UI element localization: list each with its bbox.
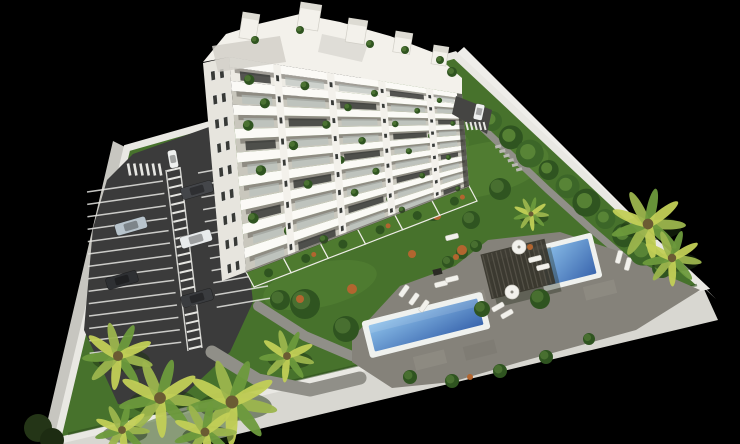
terrace-hedge xyxy=(450,197,459,206)
terrace-hedge xyxy=(413,211,422,220)
pier-window xyxy=(276,75,280,82)
pier-window xyxy=(390,208,394,214)
pier-window xyxy=(339,207,343,213)
bush-highlight xyxy=(272,292,284,304)
balcony-plant xyxy=(446,155,449,158)
side-window xyxy=(231,212,236,223)
pier-window xyxy=(281,138,285,145)
pier-window xyxy=(431,131,435,135)
pier-window xyxy=(384,134,388,139)
pier-window xyxy=(331,100,335,106)
rooftop-plant xyxy=(448,68,454,74)
pier-window xyxy=(287,222,291,229)
boundary-tree-highlight xyxy=(502,129,515,142)
bush-highlight xyxy=(491,180,504,193)
bush-highlight xyxy=(463,212,474,223)
pier-window xyxy=(433,155,437,159)
balcony-plant xyxy=(420,173,424,177)
balcony-plant xyxy=(437,98,440,101)
rooftop-plant xyxy=(402,47,407,52)
balcony-plant xyxy=(373,168,377,172)
palm-trunk xyxy=(283,352,291,360)
side-window xyxy=(213,95,218,105)
balcony-plant xyxy=(320,235,325,240)
pier-window xyxy=(335,154,339,160)
palm-trunk xyxy=(118,426,126,434)
rooftop-box xyxy=(239,12,260,40)
side-window xyxy=(227,263,232,274)
pier-window xyxy=(329,82,333,88)
balcony-plant xyxy=(371,90,375,94)
boundary-tree-highlight xyxy=(598,212,609,223)
terrace-shrub xyxy=(460,195,465,200)
side-window xyxy=(219,167,224,177)
pier-window xyxy=(289,243,293,250)
balcony-glass xyxy=(288,118,327,126)
pier-window xyxy=(282,159,286,166)
side-window xyxy=(227,164,232,174)
pier-window xyxy=(333,136,337,142)
balcony-plant xyxy=(304,180,309,185)
pier-window xyxy=(383,119,387,124)
pier-window xyxy=(430,119,434,123)
bush-highlight xyxy=(471,241,478,248)
side-window xyxy=(223,215,228,226)
pier-window xyxy=(432,143,435,147)
pier-window xyxy=(387,178,391,183)
pier-window xyxy=(380,89,384,94)
pier-window xyxy=(382,104,386,109)
side-window xyxy=(229,188,234,198)
balcony-plant xyxy=(256,166,262,172)
rooftop-plant xyxy=(297,27,302,32)
boundary-tree-highlight xyxy=(577,193,592,208)
pier-window xyxy=(435,179,438,184)
bush-highlight xyxy=(532,291,544,303)
bush-highlight xyxy=(404,371,412,379)
bush-highlight xyxy=(443,257,450,264)
bush-highlight xyxy=(335,318,351,334)
balcony-plant xyxy=(392,121,396,125)
balcony-plant xyxy=(415,108,419,112)
rooftop-box xyxy=(345,18,368,45)
balcony-plant xyxy=(301,82,306,87)
palm-trunk xyxy=(668,254,676,262)
balcony-plant xyxy=(243,121,249,127)
pier-window xyxy=(336,172,340,178)
side-window xyxy=(221,191,226,201)
bush-highlight xyxy=(584,334,591,341)
pier-window xyxy=(428,95,432,99)
side-window xyxy=(211,71,216,81)
flowering-shrub xyxy=(453,254,459,260)
pier-window xyxy=(386,163,390,168)
terrace-shrub xyxy=(386,223,391,228)
side-window xyxy=(225,140,230,150)
pier-window xyxy=(429,107,433,111)
balcony-plant xyxy=(248,213,254,219)
balcony-plant xyxy=(323,121,328,126)
terrace-hedge xyxy=(301,254,310,263)
terrace-hedge xyxy=(338,240,347,249)
balcony-plant xyxy=(351,189,356,194)
balcony-plant xyxy=(244,75,250,81)
pier-window xyxy=(286,201,290,208)
bush-highlight xyxy=(475,302,485,312)
pier-window xyxy=(277,96,281,103)
pier-window xyxy=(385,148,389,153)
terrace-hedge xyxy=(376,225,385,234)
palm-trunk xyxy=(201,428,210,437)
balcony-plant xyxy=(451,121,454,124)
flowering-shrub xyxy=(457,245,467,255)
flowering-shrub xyxy=(467,374,473,380)
side-window xyxy=(233,236,238,247)
bush-highlight xyxy=(446,375,454,383)
bush-highlight xyxy=(494,365,502,373)
balcony-glass xyxy=(341,119,377,126)
side-window xyxy=(235,260,240,271)
palm-trunk xyxy=(113,351,123,361)
boundary-tree-highlight xyxy=(559,178,572,191)
palm-trunk xyxy=(643,219,654,230)
boundary-tree-highlight xyxy=(541,163,552,174)
palm-trunk xyxy=(154,392,166,404)
side-window xyxy=(217,143,222,153)
pier-window xyxy=(389,193,393,198)
flowering-shrub xyxy=(527,244,533,250)
balcony-plant xyxy=(289,141,295,147)
balcony-plant xyxy=(399,207,403,211)
palm-trunk xyxy=(528,211,533,216)
pier-window xyxy=(332,118,336,123)
flowering-shrub xyxy=(296,295,304,303)
balcony-plant xyxy=(359,137,363,141)
side-window xyxy=(225,239,230,250)
side-window xyxy=(223,116,228,126)
pier-window xyxy=(434,167,438,171)
terrace-hedge xyxy=(264,268,273,277)
flowering-shrub xyxy=(408,250,416,258)
pier-window xyxy=(279,117,283,123)
balcony-plant xyxy=(260,99,266,105)
balcony-plant xyxy=(344,104,349,109)
rooftop-plant xyxy=(252,37,257,42)
bush-highlight xyxy=(540,351,548,359)
terrace-shrub xyxy=(311,252,316,257)
side-window xyxy=(221,93,226,103)
palm-trunk xyxy=(226,396,239,409)
flowering-shrub xyxy=(347,284,357,294)
rooftop-plant xyxy=(437,57,442,62)
pier-window xyxy=(338,189,342,195)
balcony-plant xyxy=(406,148,410,152)
pier-window xyxy=(284,180,288,187)
aerial-render xyxy=(0,0,740,444)
parasol-pole xyxy=(518,246,521,249)
render-canvas xyxy=(0,0,740,444)
parasol-pole xyxy=(511,291,514,294)
boundary-tree-highlight xyxy=(520,144,535,159)
rooftop-plant xyxy=(367,41,372,46)
pier-window xyxy=(341,225,345,232)
side-window xyxy=(215,119,220,129)
